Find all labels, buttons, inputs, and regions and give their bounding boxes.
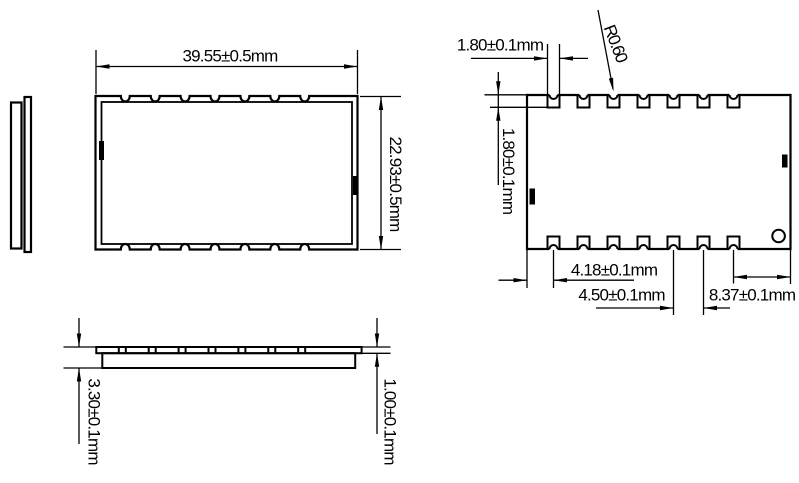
svg-text:8.37±0.1mm: 8.37±0.1mm (709, 286, 796, 305)
svg-text:3.30±0.1mm: 3.30±0.1mm (84, 378, 103, 465)
svg-text:1.80±0.1mm: 1.80±0.1mm (499, 128, 518, 215)
svg-text:4.50±0.1mm: 4.50±0.1mm (578, 286, 665, 305)
svg-text:1.80±0.1mm: 1.80±0.1mm (457, 36, 544, 55)
svg-text:39.55±0.5mm: 39.55±0.5mm (182, 47, 278, 66)
svg-text:4.18±0.1mm: 4.18±0.1mm (571, 261, 658, 280)
svg-text:1.00±0.1mm: 1.00±0.1mm (381, 378, 400, 465)
svg-text:22.93±0.5mm: 22.93±0.5mm (386, 136, 405, 232)
